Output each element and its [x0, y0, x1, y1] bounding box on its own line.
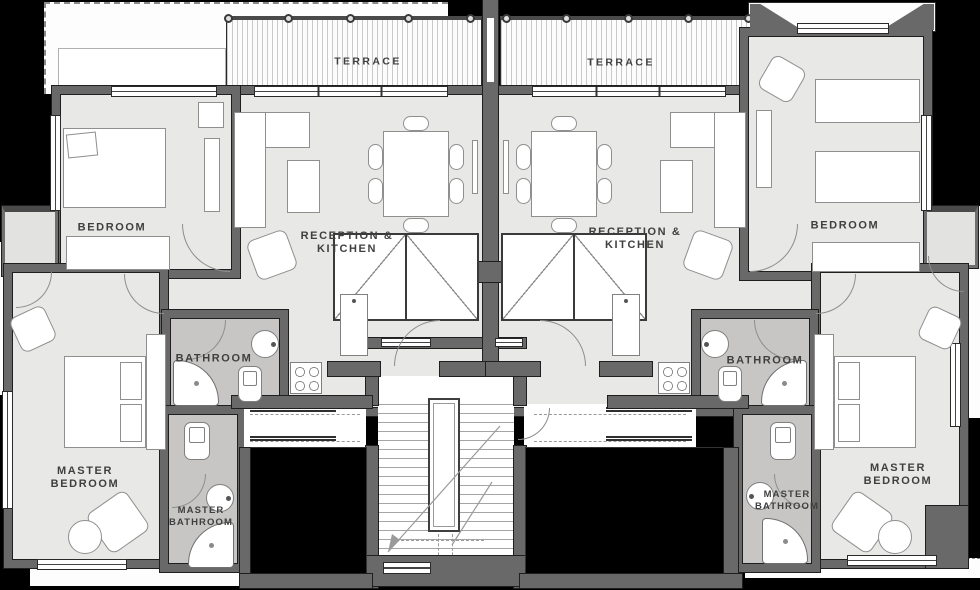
label-reception-right: RECEPTION & KITCHEN [589, 226, 682, 252]
wall-void [240, 448, 250, 576]
toilet [184, 422, 210, 460]
dresser [204, 138, 220, 212]
door-leaf [503, 140, 509, 194]
dining-table [383, 131, 449, 217]
toilet [238, 366, 262, 402]
wall-entry-right [600, 362, 652, 376]
window [384, 563, 430, 573]
kitchen-counter [612, 294, 640, 356]
bench [812, 242, 920, 272]
stove [290, 362, 322, 394]
label-master-bathroom-right: MASTER BATHROOM [755, 489, 819, 513]
window [922, 116, 931, 210]
label-master-bathroom-left: MASTER BATHROOM [169, 505, 233, 529]
pillow [120, 362, 142, 400]
window [496, 339, 522, 346]
pillow [66, 131, 98, 158]
window [848, 556, 936, 565]
bay-window [798, 24, 888, 33]
wall-void [724, 448, 738, 576]
chair [449, 144, 464, 170]
chair [449, 178, 464, 204]
headboard [814, 334, 834, 450]
dresser [756, 110, 772, 188]
window [533, 87, 725, 96]
corridor-dash [250, 441, 360, 442]
window [38, 560, 126, 569]
railing-post [224, 14, 233, 23]
floor-plan: TERRACE TERRACE BEDROOM BEDROOM RECEPTIO… [0, 0, 980, 590]
chair [403, 218, 429, 233]
railing-post [466, 14, 475, 23]
toilet [770, 422, 796, 460]
label-master-bedroom-left: MASTER BEDROOM [51, 465, 120, 491]
railing-post [284, 14, 293, 23]
chair [597, 178, 612, 204]
void-left [246, 448, 366, 576]
chair [516, 144, 531, 170]
railing-post [346, 14, 355, 23]
toilet [718, 366, 742, 402]
bed [815, 151, 920, 203]
pillow [838, 362, 860, 400]
chair [551, 116, 577, 131]
corridor-railing [250, 436, 336, 441]
corridor-dash [534, 414, 686, 415]
railing-post [562, 14, 571, 23]
label-bathroom-right: BATHROOM [727, 355, 804, 368]
label-master-bedroom-right: MASTER BEDROOM [864, 462, 933, 488]
bed [815, 79, 920, 123]
headboard [146, 334, 166, 450]
label-bedroom-left: BEDROOM [78, 222, 147, 235]
wall-entry-left [328, 362, 380, 376]
railing-post [684, 14, 693, 23]
sofa [234, 112, 266, 228]
window [112, 87, 216, 96]
stove [658, 362, 690, 394]
sink [701, 330, 729, 358]
wall-void [240, 574, 372, 588]
chair [516, 178, 531, 204]
pouf [68, 520, 102, 554]
terrace-right [500, 16, 756, 94]
label-bathroom-left: BATHROOM [176, 353, 253, 366]
pouf [878, 520, 912, 554]
nightstand [198, 102, 224, 128]
dining-table [531, 131, 597, 217]
window [951, 344, 960, 426]
coffee-table [287, 160, 320, 213]
chair [403, 116, 429, 131]
window [255, 87, 447, 96]
coffee-table [660, 160, 693, 213]
corridor-dash [250, 414, 360, 415]
stair-wall-right [514, 377, 526, 405]
corridor-railing [606, 436, 692, 441]
pillow [838, 404, 860, 442]
wall-entry-right [486, 362, 540, 376]
label-reception-left: RECEPTION & KITCHEN [301, 230, 394, 256]
chair [368, 144, 383, 170]
window [3, 392, 12, 508]
sofa [714, 112, 746, 228]
stair-rail [428, 398, 460, 532]
central-wall-slot [487, 18, 494, 82]
void-right [526, 448, 726, 576]
railing-post [404, 14, 413, 23]
chair [551, 218, 577, 233]
stair-guide [396, 540, 484, 541]
bench [66, 236, 170, 270]
kitchen-counter [340, 294, 368, 356]
door-leaf [472, 140, 478, 194]
wall-void [520, 574, 742, 588]
label-terrace-right: TERRACE [587, 57, 655, 70]
railing-post [502, 14, 511, 23]
sink [251, 330, 279, 358]
railing-post [624, 14, 633, 23]
pillow [120, 404, 142, 442]
corridor-dash [534, 441, 686, 442]
label-terrace-left: TERRACE [334, 56, 402, 69]
label-bedroom-right: BEDROOM [811, 220, 880, 233]
chair [368, 178, 383, 204]
window [51, 116, 60, 210]
chair [597, 144, 612, 170]
